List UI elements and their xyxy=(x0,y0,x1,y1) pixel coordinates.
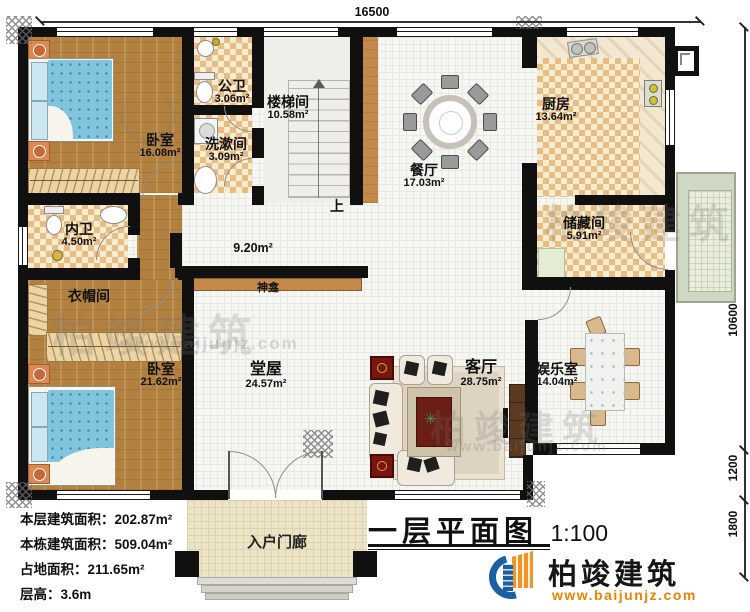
porch-column xyxy=(175,551,199,577)
room-label-storage: 储藏间 5.91m² xyxy=(539,216,629,242)
room-name: 公卫 xyxy=(187,79,277,94)
porch-step xyxy=(201,585,353,593)
wall-segment xyxy=(178,193,182,205)
room-label-kitchen: 厨房 13.64m² xyxy=(511,97,601,123)
dining-chair xyxy=(483,113,497,131)
info-line-footprint: 占地面积：211.65m² xyxy=(20,557,172,582)
flue-notch xyxy=(680,53,690,65)
room-label-ensuite: 内卫 4.50m² xyxy=(34,222,124,248)
shrine-label: 神龛 xyxy=(238,279,298,295)
sofa-pillow xyxy=(404,361,419,376)
wall-segment xyxy=(175,266,368,278)
dim-line-top xyxy=(40,21,700,23)
wall-segment xyxy=(18,265,28,500)
watermark-url: www.baijunjz.com xyxy=(446,438,607,455)
corner-hatch xyxy=(516,16,542,29)
window xyxy=(57,27,153,37)
corner-hatch xyxy=(6,16,32,44)
pillow xyxy=(31,101,48,140)
wall-segment xyxy=(640,443,675,455)
room-area: 4.50m² xyxy=(34,237,124,249)
wall-segment xyxy=(18,193,140,205)
toilet-tank xyxy=(44,206,64,214)
room-name: 储藏间 xyxy=(539,216,629,231)
wall-segment xyxy=(322,490,395,500)
room-label-game-room: 娱乐室 14.04m² xyxy=(512,362,602,388)
window xyxy=(397,27,492,37)
window xyxy=(190,27,237,37)
wall-segment xyxy=(350,27,363,205)
lamp-icon xyxy=(33,468,46,481)
floor-drain-icon xyxy=(52,250,63,261)
wall-segment xyxy=(665,270,675,455)
side-table-ring xyxy=(377,461,387,471)
dim-label-right-mid: 1200 xyxy=(726,438,740,498)
window xyxy=(18,227,28,265)
burner xyxy=(649,84,658,93)
wall-segment xyxy=(252,186,264,205)
sofa-pillow xyxy=(373,390,390,407)
plan-scale: 1:100 xyxy=(550,520,608,546)
title-underline xyxy=(368,544,550,547)
kitchen-counter-right xyxy=(638,37,665,197)
watermark-text: 柏竣建筑 xyxy=(52,300,260,364)
brand-logo-tower-blue xyxy=(503,564,513,591)
porch-column xyxy=(353,551,377,577)
window xyxy=(57,490,150,500)
lamp-icon xyxy=(33,368,46,381)
up-label: 上 xyxy=(330,196,344,216)
dim-label-right-lower: 1800 xyxy=(726,494,740,554)
room-area: 13.64m² xyxy=(511,112,601,124)
sink-basin xyxy=(584,42,596,54)
porch-step xyxy=(205,593,349,600)
window xyxy=(255,27,338,37)
window xyxy=(665,90,675,145)
corner-hatch xyxy=(6,482,32,508)
basin-icon xyxy=(194,166,217,194)
room-area: 3.09m² xyxy=(181,152,271,164)
storage-shelf xyxy=(538,248,565,278)
sink-basin xyxy=(571,43,583,55)
side-table-ring xyxy=(377,363,387,373)
room-label-dining: 餐厅 17.03m² xyxy=(379,163,469,189)
burner xyxy=(649,96,658,105)
info-line-height: 层高：3.6m xyxy=(20,582,172,607)
wall-segment xyxy=(522,195,537,290)
wall-segment xyxy=(338,27,397,37)
hall-area-label: 9.20m² xyxy=(215,241,291,255)
game-chair xyxy=(624,348,640,366)
room-area: 5.91m² xyxy=(539,231,629,243)
kitchen-floor xyxy=(537,58,640,197)
window xyxy=(395,490,520,500)
dining-chair xyxy=(441,75,459,89)
game-chair xyxy=(624,382,640,400)
stair-wood-wall xyxy=(363,37,378,203)
door-leaf xyxy=(321,451,323,499)
room-area: 10.58m² xyxy=(243,110,333,122)
dining-table-center xyxy=(439,111,463,135)
corner-hatch xyxy=(527,481,545,507)
room-name: 卧室 xyxy=(116,362,206,377)
watermark-url: www.baijunjz.com xyxy=(120,334,299,354)
window xyxy=(567,27,638,37)
sofa-pillow xyxy=(373,432,387,446)
door-leaf xyxy=(228,451,230,499)
info-block: 本层建筑面积：202.87m² 本栋建筑面积：509.04m² 占地面积：211… xyxy=(20,507,172,607)
dim-line-right xyxy=(744,27,746,577)
room-label-main-hall: 堂屋 24.57m² xyxy=(221,362,311,390)
wall-segment xyxy=(170,233,182,268)
porch-step xyxy=(197,577,357,585)
lamp-icon xyxy=(33,145,46,158)
room-name: 楼梯间 xyxy=(243,95,333,110)
sofa-pillow xyxy=(407,457,422,472)
title-underline xyxy=(368,549,550,550)
room-name: 娱乐室 xyxy=(512,362,602,377)
wall-segment xyxy=(182,27,194,205)
room-name: 洗漱间 xyxy=(181,137,271,152)
room-area: 14.04m² xyxy=(512,377,602,389)
stair-arrow-icon xyxy=(313,79,325,88)
room-name: 堂屋 xyxy=(221,362,311,379)
room-area: 21.62m² xyxy=(116,377,206,389)
wall-segment xyxy=(150,490,228,500)
room-name: 餐厅 xyxy=(379,163,469,178)
brand-logo-tower-orange xyxy=(512,551,533,588)
wall-segment xyxy=(522,27,537,68)
room-name: 内卫 xyxy=(34,222,124,237)
exterior-patch xyxy=(533,455,665,500)
brand-url: www.baijunjz.com xyxy=(552,587,697,603)
room-name: 厨房 xyxy=(511,97,601,112)
info-line-building-area: 本栋建筑面积：509.04m² xyxy=(20,532,172,557)
room-label-washroom: 洗漱间 3.09m² xyxy=(181,137,271,163)
dim-label-right-upper: 10600 xyxy=(726,290,740,350)
pillow xyxy=(31,392,48,427)
room-label-cloakroom: 衣帽间 xyxy=(44,289,134,304)
porch-label: 入户门廊 xyxy=(227,531,327,552)
room-label-bedroom2: 卧室 21.62m² xyxy=(116,362,206,388)
room-area: 24.57m² xyxy=(221,379,311,391)
dining-chair xyxy=(403,113,417,131)
info-line-floor-area: 本层建筑面积：202.87m² xyxy=(20,507,172,532)
lamp-icon xyxy=(33,44,46,57)
pillow xyxy=(31,62,48,101)
wardrobe-rod xyxy=(30,180,138,181)
faucet-icon xyxy=(212,38,220,46)
room-area: 17.03m² xyxy=(379,178,469,190)
room-label-stairwell: 楼梯间 10.58m² xyxy=(243,95,333,121)
wall-segment xyxy=(18,268,140,280)
pillow xyxy=(31,427,48,462)
floor-plan: ✳ xyxy=(0,0,750,612)
room-name: 衣帽间 xyxy=(44,289,134,304)
dim-label-top: 16500 xyxy=(344,5,400,19)
